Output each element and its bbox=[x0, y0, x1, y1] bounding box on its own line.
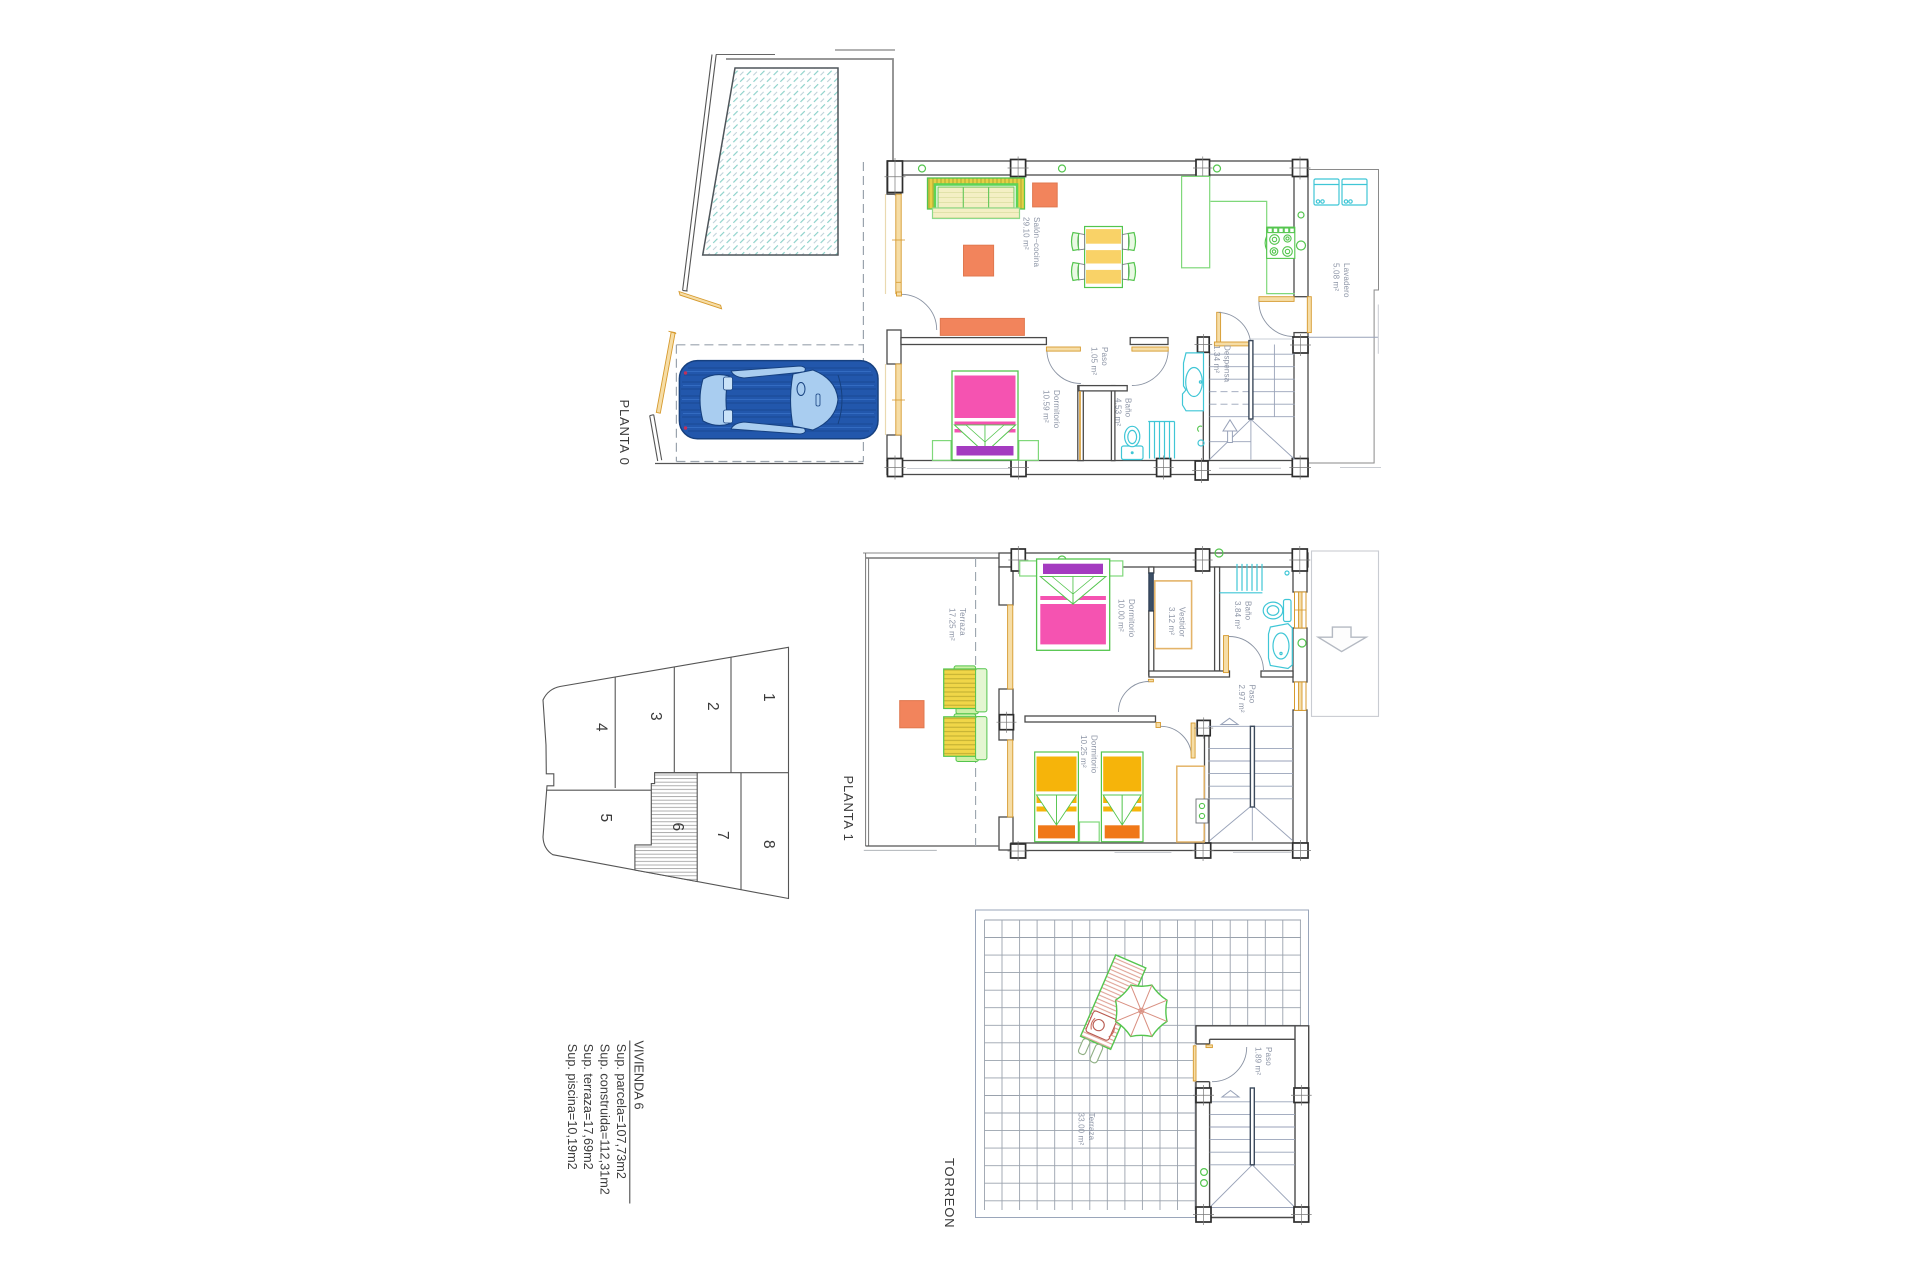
svg-text:5: 5 bbox=[597, 814, 614, 823]
svg-text:Sup. construida=112,31m2: Sup. construida=112,31m2 bbox=[598, 1044, 612, 1195]
svg-text:3: 3 bbox=[647, 712, 664, 721]
svg-text:Sup. terraza=17,69m2: Sup. terraza=17,69m2 bbox=[581, 1044, 595, 1170]
svg-text:VIVIENDA 6: VIVIENDA 6 bbox=[632, 1041, 646, 1110]
svg-text:PLANTA 0: PLANTA 0 bbox=[617, 400, 632, 466]
svg-text:6: 6 bbox=[669, 823, 686, 832]
svg-text:2: 2 bbox=[704, 702, 721, 711]
svg-text:4: 4 bbox=[593, 723, 610, 732]
svg-text:Sup. piscina=10,19m2: Sup. piscina=10,19m2 bbox=[565, 1044, 579, 1170]
svg-text:PLANTA 1: PLANTA 1 bbox=[841, 776, 856, 842]
svg-text:7: 7 bbox=[714, 831, 731, 840]
svg-text:1: 1 bbox=[760, 693, 777, 702]
svg-text:Sup. parcela=107,73m2: Sup. parcela=107,73m2 bbox=[614, 1044, 628, 1179]
svg-text:8: 8 bbox=[760, 840, 777, 849]
svg-text:Vestidor3.12 m²: Vestidor3.12 m² bbox=[1167, 607, 1187, 637]
svg-text:TORREON: TORREON bbox=[942, 1158, 957, 1228]
